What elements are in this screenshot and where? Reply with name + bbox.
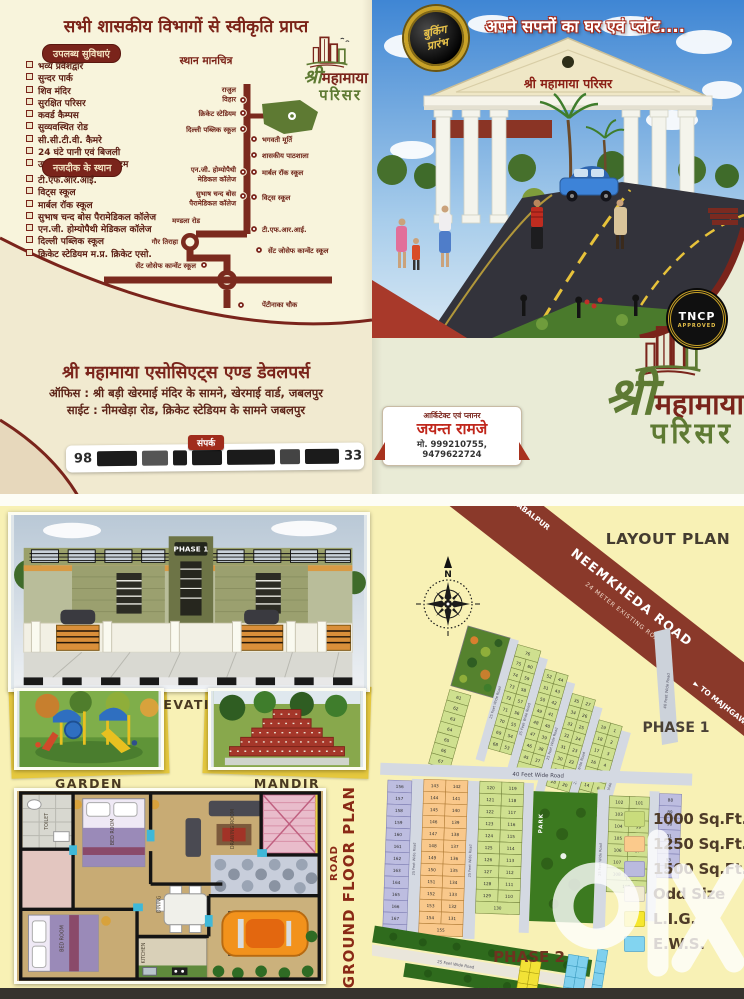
headline: अपने सपनों का घर एवं प्लॉट.... [440,14,730,37]
phone-redaction [97,451,137,466]
plot-number: 141 [452,796,460,801]
architect-phone: मो. 999210755, 9479622724 [387,439,517,460]
legend-swatch [624,861,645,877]
legend-row: E.W.S. [624,931,744,956]
plot-number: 136 [450,856,458,861]
legend-swatch [624,886,645,902]
plot-number: 121 [486,797,494,802]
plot-number: 162 [393,856,401,861]
hex-patio [211,855,318,896]
plot-number: 167 [391,916,399,921]
approved-text: APPROVED [678,323,717,329]
phone-fragment-right: 33 [344,448,362,463]
plot-number: 146 [429,819,437,824]
plot-number: 160 [394,832,402,837]
legend-label: E.W.S. [653,935,705,953]
plot-number: 149 [428,855,436,860]
plot-number: 144 [430,795,438,800]
driveway [24,652,353,677]
plot-number: 123 [485,821,493,826]
plot-number: 126 [484,857,492,862]
contact-ribbon: संपर्क [188,435,224,450]
facility-item: भव्य प्रवेशद्वार [26,61,128,73]
plot-number: 108 [613,872,621,877]
plot-number: 159 [394,820,402,825]
facility-item: शिव मंदिर [26,86,128,98]
plot-number: 150 [428,867,436,872]
plot-number: 155 [437,927,445,932]
plot-number: 128 [483,881,491,886]
plot-number: 88 [668,797,674,802]
plot-number: 152 [427,891,435,896]
svg-text:TOILET: TOILET [44,813,50,831]
plot-number: 120 [487,785,495,790]
plot-number: 124 [485,833,493,838]
plot-cell [596,949,608,962]
legend-label: 1500 Sq.Ft. [653,860,744,878]
booking-badge-line2: प्रारंभ [426,36,450,53]
svg-text:KITCHEN: KITCHEN [141,942,147,963]
plot-number: 151 [427,879,435,884]
logo-sub: परिसर [651,416,734,450]
phone-fragment-left: 98 [74,451,92,466]
plot-number: 148 [429,843,437,848]
plot-number: 107 [613,860,621,865]
buildings-icon [300,34,354,68]
plot-number: 154 [426,915,434,920]
half-divider [0,494,744,506]
plan-road-label: ROAD [327,838,341,888]
plot-number: 127 [484,869,492,874]
legend-label: Odd Size [653,885,725,903]
brochure-scan: सभी शासकीय विभागों से स्वीकृति प्राप्त उ… [0,0,744,999]
bedroom-2 [28,915,110,971]
phone-redaction [227,449,275,465]
plot-number: 119 [509,786,517,791]
logo-shree: श्री [604,366,654,427]
legend-row: 1000 Sq.Ft. [624,806,744,831]
logo-name: महामाया [322,69,368,87]
architect-card: आर्किटेक्ट एवं प्लानर जयन्त रामजे मो. 99… [382,406,522,466]
legend-label: 1000 Sq.Ft. [653,810,744,828]
svg-text:DRAWING ROOM: DRAWING ROOM [230,809,236,849]
svg-text:BED ROOM: BED ROOM [59,925,65,952]
tncp-approved-badge: TNCP APPROVED [668,290,726,348]
nearby-place-item: सुभाष चन्द बोस पैरामेडिकल कॉलेज [26,212,156,224]
mandir-photo [208,688,366,770]
company-name: श्री महामाया एसोसिएट्स एण्ड डेवलपर्स [10,360,362,384]
plot-number: 131 [448,916,456,921]
plot-cell [565,965,577,977]
nearby-place-item: टी.एफ.आर.आई. [26,175,156,187]
plot-number: 166 [391,904,399,909]
architect-name: जयन्त रामजे [387,421,517,439]
plot-number: 134 [449,880,457,885]
plot-number: 138 [451,832,459,837]
plot-number: 163 [393,868,401,873]
plot-number: 125 [485,845,493,850]
staircase [263,795,319,853]
svg-text:DINING: DINING [156,895,162,913]
nearby-place-item: दिल्ली पब्लिक स्कूल [26,236,156,248]
plot-number: 135 [450,868,458,873]
plot-cell [594,961,606,974]
plot-number: 114 [507,846,515,851]
plot-cell [567,954,579,966]
plot-cell [575,967,587,979]
phone-redaction [280,449,300,464]
tncp-text: TNCP [679,310,716,323]
facility-item: कवर्ड कैम्पस [26,110,128,122]
plot-number: 105 [614,836,622,841]
plot-number: 111 [505,882,513,887]
plot-number: 130 [493,905,501,910]
phone-redaction [142,450,168,465]
plot-number: 157 [395,796,403,801]
facility-item: सुव्यवस्थित रोड [26,122,128,134]
plot-number: 118 [508,798,516,803]
legend-swatch [624,911,645,927]
phone-redaction [192,450,222,465]
phone-redaction [305,449,339,464]
plot-number: 104 [614,824,622,829]
phone-redaction [173,450,187,465]
plot-number: 156 [396,784,404,789]
plot-number: 110 [505,894,513,899]
plot-cell [577,956,589,968]
elevation-render: PHASE 1 [8,512,370,692]
logo-sub: परिसर [319,86,362,104]
photo-bottom-edge [0,988,744,999]
legend-row: L.I.G. [624,906,744,931]
plot-number: 133 [449,892,457,897]
plot-cell [564,976,576,988]
legend-row: 1500 Sq.Ft. [624,856,744,881]
plot-number: 143 [431,783,439,788]
logo-small: श्रीमहामाया परिसर [236,34,368,103]
plot-number: 139 [451,820,459,825]
car-porch [209,896,318,979]
plot-number: 153 [426,903,434,908]
floor-plan-title: GROUND FLOOR PLAN [340,788,358,986]
plot-number: 142 [453,784,461,789]
plot-number: 102 [615,800,623,805]
legend-label: L.I.G. [653,910,696,928]
plot-number: 129 [483,893,491,898]
plot-cell [528,972,540,985]
kitchen [137,938,207,977]
facility-item: सुन्दर पार्क [26,73,128,85]
plot-number: 132 [448,904,456,909]
balcony [21,849,73,909]
facilities-list: भव्य प्रवेशद्वारसुन्दर पार्कशिव मंदिरसुर… [26,61,128,172]
svg-text:N: N [444,570,452,580]
gate-sign: श्री महामाया परिसर [523,76,613,91]
legend-row: Odd Size [624,881,744,906]
nearby-place-item: मार्बल रॉक स्कूल [26,200,156,212]
plot-number: 158 [395,808,403,813]
plot-number: 147 [429,831,437,836]
legend-label: 1250 Sq.Ft. [653,835,744,853]
plot-number: 145 [430,807,438,812]
plot-number: 112 [506,870,514,875]
plot-number: 161 [394,844,402,849]
plot-number: 101 [635,800,643,805]
legend-swatch [624,936,645,952]
plot-number: 165 [392,892,400,897]
floor-plan: TOILET BED ROOM BED ROOM DRAWING ROOM DI… [14,788,326,984]
parked-car [222,911,307,956]
plot-number: 103 [615,812,623,817]
legend-swatch [624,811,645,827]
company-office-address: ऑफिस : श्री बड़ी खेरमाई मंदिर के सामने, … [10,386,362,401]
nearby-place-item: विट्स स्कूल [26,187,156,199]
nearby-list: टी.एफ.आर.आई.विट्स स्कूलमार्बल रॉक स्कूलस… [26,175,156,261]
plot-number: 122 [486,809,494,814]
plot-number: 164 [392,880,400,885]
side-steps [708,208,738,225]
phase1-label: PHASE 1 [642,720,709,736]
company-site-address: साईट : नीमखेड़ा रोड, क्रिकेट स्टेडियम के… [10,403,362,418]
layout-title: LAYOUT PLAN [606,530,731,548]
facility-item: सी.सी.टी.वी. कैमरे [26,135,128,147]
plot-cell [573,978,585,988]
phase1-sign: PHASE 1 [174,545,209,554]
legend-row: 1250 Sq.Ft. [624,831,744,856]
plot-number: 137 [451,844,459,849]
legend-swatch [624,836,645,852]
park-label: PARK [538,813,545,833]
logo-shree: श्री [303,66,321,88]
compass-icon: N [416,556,480,636]
nearby-place-item: क्रिकेट स्टेडियम म.प्र. क्रिकेट एसो. [26,249,156,261]
plot-number: 113 [506,858,514,863]
facility-item: सुरक्षित परिसर [26,98,128,110]
svg-text:BED ROOM: BED ROOM [110,819,116,846]
plot-number: 140 [452,808,460,813]
plot-number: 116 [507,822,515,827]
phase2-label: PHASE 2 [493,948,565,966]
plot-number: 115 [507,834,515,839]
plot-number: 106 [614,848,622,853]
plot-size-legend: 1000 Sq.Ft.1250 Sq.Ft.1500 Sq.Ft.Odd Siz… [624,806,744,956]
nearby-place-item: एन.जी. होम्योपैथी मेडिकल कॉलेज [26,224,156,236]
plot-cell [592,973,604,986]
garden-photo [14,688,164,770]
plot-number: 117 [508,810,516,815]
